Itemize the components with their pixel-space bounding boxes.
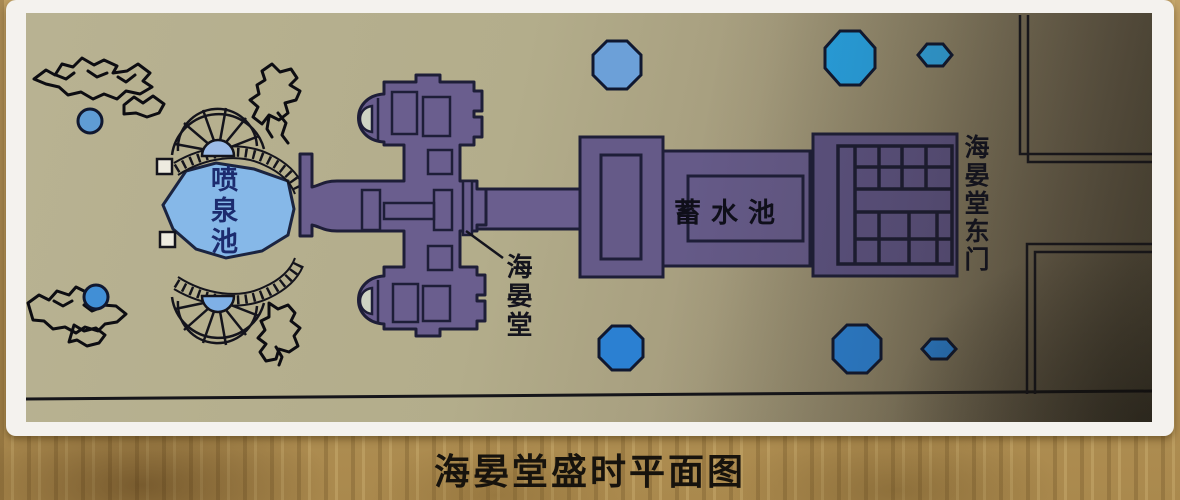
pond-octagon-bottom-middle xyxy=(599,326,643,370)
photo-paper: 喷泉池 海晏堂 蓄水池 海晏堂东门 xyxy=(6,0,1174,436)
rockery-top-right-of-wheel xyxy=(250,64,300,143)
rockery-bottom-left xyxy=(28,287,126,346)
pond-octagon-top-right xyxy=(825,31,875,85)
pond-circle-top-left xyxy=(78,109,102,133)
fan-terrace-bottom xyxy=(174,258,303,306)
platform-square-1 xyxy=(157,159,172,174)
pond-hexagon-top-right xyxy=(918,44,952,66)
pond-circle-bottom-left xyxy=(84,285,108,309)
reservoir-left-block xyxy=(580,137,663,277)
courtyard-wall-bottom-right xyxy=(1027,244,1152,394)
label-hall: 海晏堂 xyxy=(504,253,530,340)
courtyard-wall-top-right xyxy=(1020,15,1152,162)
label-fountain-pool: 喷泉池 xyxy=(208,165,235,258)
hall-junction-strip xyxy=(463,181,472,235)
label-reservoir: 蓄水池 xyxy=(674,191,814,230)
pond-octagon-bottom-right xyxy=(833,325,881,373)
label-east-gate: 海晏堂东门 xyxy=(962,134,987,274)
platform-square-2 xyxy=(160,232,175,247)
path-line xyxy=(26,391,1152,399)
map-area: 喷泉池 海晏堂 蓄水池 海晏堂东门 xyxy=(26,13,1152,422)
rockery-top-left xyxy=(34,58,164,117)
pond-octagon-top-middle xyxy=(593,41,641,89)
page: { "map_photo": { "caption": "海晏堂盛时平面图", … xyxy=(0,0,1180,500)
hall-label-leader xyxy=(466,231,503,258)
corridor xyxy=(477,189,590,229)
map-caption: 海晏堂盛时平面图 xyxy=(0,443,1180,495)
rockery-bottom-right-of-wheel xyxy=(258,303,300,365)
pond-hexagon-bottom-right xyxy=(922,339,956,359)
